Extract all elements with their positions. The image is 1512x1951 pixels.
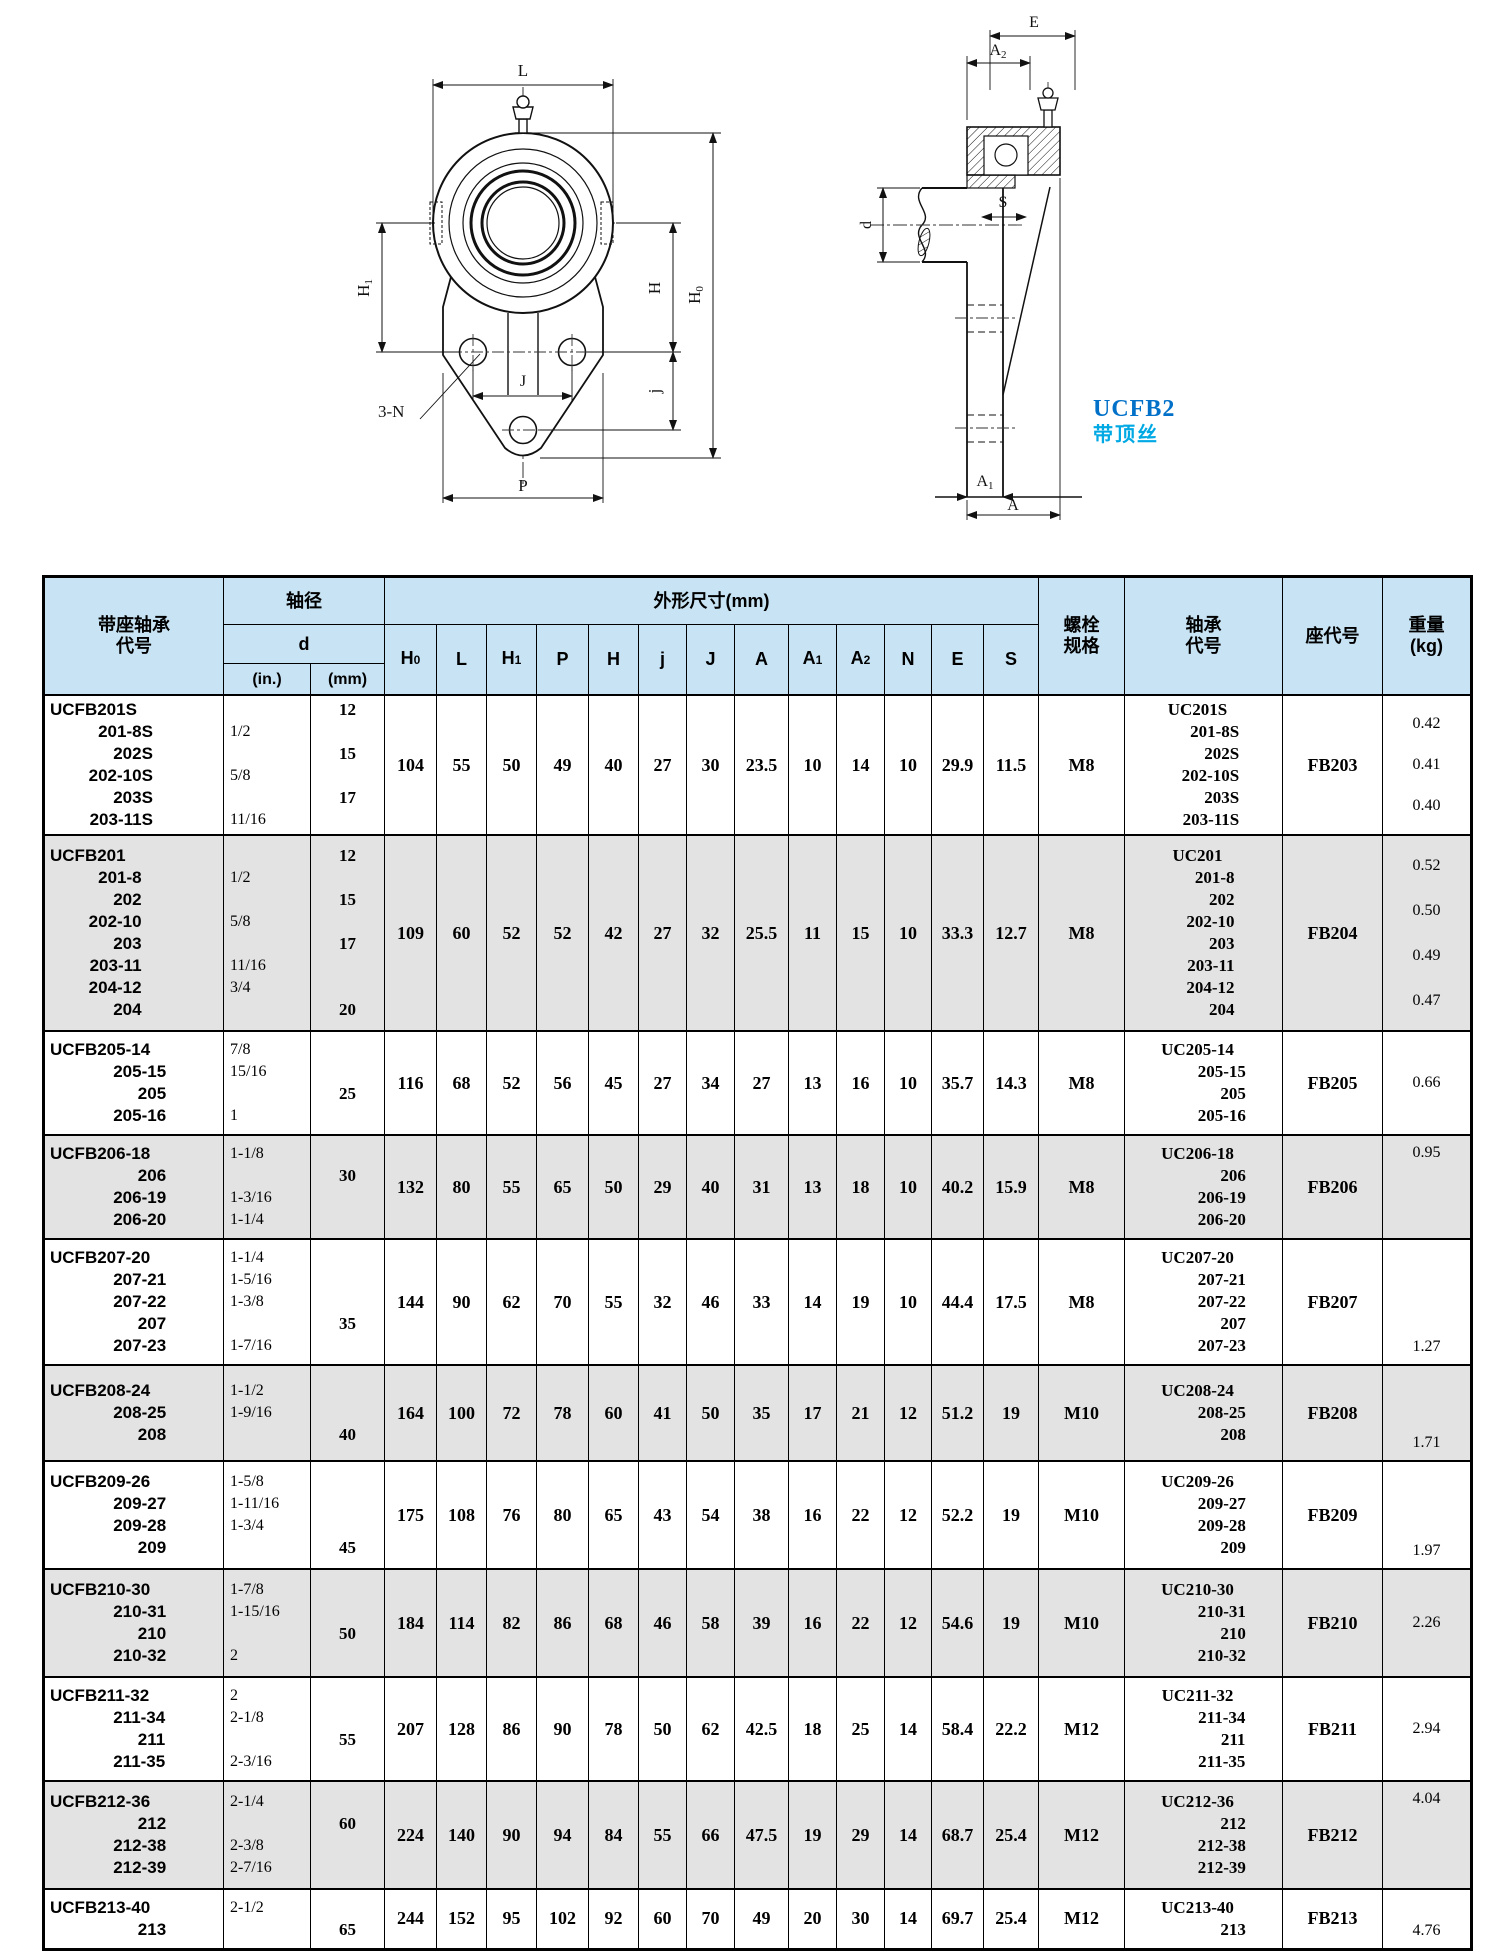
dim-label-H0: H0: [685, 286, 706, 304]
cell-dim-9: 30: [837, 1889, 885, 1949]
series-label: UCFB2 带顶丝: [1093, 397, 1175, 446]
cell-dim-1: 68: [437, 1031, 487, 1135]
cell-dim-12: 19: [984, 1365, 1039, 1461]
header-inch: (in.): [224, 664, 311, 696]
cell-dim-11: 69.7: [932, 1889, 984, 1949]
cell-dim-12: 17.5: [984, 1239, 1039, 1365]
cell-dim-4: 78: [589, 1677, 639, 1781]
side-view-drawing: E A2 d S A1: [850, 10, 1180, 530]
header-dim-A: A: [735, 625, 789, 696]
header-dim-J: J: [687, 625, 735, 696]
cell-bearing-code: UC201S201-8S202S202-10S203S203-11S: [1125, 695, 1283, 835]
cell-dim-1: 128: [437, 1677, 487, 1781]
header-dim-N: N: [885, 625, 932, 696]
cell-dim-12: 11.5: [984, 695, 1039, 835]
cell-dim-7: 38: [735, 1461, 789, 1569]
cell-shaft-dia-mm: 60: [311, 1781, 385, 1889]
cell-dim-1: 100: [437, 1365, 487, 1461]
cell-dim-0: 116: [385, 1031, 437, 1135]
cell-dim-8: 14: [789, 1239, 837, 1365]
bearing-ball: [995, 144, 1017, 166]
cell-dim-7: 23.5: [735, 695, 789, 835]
cell-dim-10: 10: [885, 695, 932, 835]
cell-unit-code: UCFB209-26209-27209-28209: [44, 1461, 224, 1569]
table-row: UCFB209-26209-27209-282091-5/81-11/161-3…: [44, 1461, 1472, 1569]
cell-bolt-spec: M10: [1039, 1569, 1125, 1677]
cell-dim-11: 52.2: [932, 1461, 984, 1569]
dim-label-d: d: [858, 221, 875, 229]
cell-unit-code: UCFB207-20207-21207-22207207-23: [44, 1239, 224, 1365]
cell-dim-4: 45: [589, 1031, 639, 1135]
cell-dim-7: 39: [735, 1569, 789, 1677]
cell-dim-1: 60: [437, 835, 487, 1031]
cell-dim-8: 13: [789, 1031, 837, 1135]
cell-dim-4: 55: [589, 1239, 639, 1365]
cell-dim-4: 50: [589, 1135, 639, 1239]
dimension-table: 带座轴承代号 轴径 外形尺寸(mm) 螺栓规格 轴承代号 座代号 重量(kg) …: [42, 575, 1473, 1951]
grease-fitting-icon: [513, 96, 533, 133]
cell-dim-9: 15: [837, 835, 885, 1031]
cell-dim-0: 144: [385, 1239, 437, 1365]
cell-bearing-code: UC213-40213: [1125, 1889, 1283, 1949]
cell-dim-4: 60: [589, 1365, 639, 1461]
cell-bolt-spec: M8: [1039, 1135, 1125, 1239]
dim-label-A: A: [1007, 497, 1019, 514]
cell-dim-6: 46: [687, 1239, 735, 1365]
header-dim-A1: A1: [789, 625, 837, 696]
cell-housing-code: FB205: [1283, 1031, 1383, 1135]
table-row: UCFB206-18206206-19206-201-1/8 1-3/161-1…: [44, 1135, 1472, 1239]
cell-dim-10: 14: [885, 1781, 932, 1889]
cell-dim-12: 15.9: [984, 1135, 1039, 1239]
cell-dim-5: 27: [639, 835, 687, 1031]
table-row: UCFB213-402132-1/2 652441529510292607049…: [44, 1889, 1472, 1949]
cell-dim-8: 11: [789, 835, 837, 1031]
cell-dim-0: 244: [385, 1889, 437, 1949]
cell-housing-code: FB210: [1283, 1569, 1383, 1677]
cell-dim-7: 42.5: [735, 1677, 789, 1781]
cell-dim-6: 70: [687, 1889, 735, 1949]
header-dim-H1: H1: [487, 625, 537, 696]
cell-dim-5: 41: [639, 1365, 687, 1461]
cell-dim-8: 18: [789, 1677, 837, 1781]
table-row: UCFB212-36212212-38212-392-1/4 2-3/82-7/…: [44, 1781, 1472, 1889]
cell-dim-3: 49: [537, 695, 589, 835]
cell-dim-0: 164: [385, 1365, 437, 1461]
series-subtitle: 带顶丝: [1093, 425, 1175, 446]
cell-unit-code: UCFB206-18206206-19206-20: [44, 1135, 224, 1239]
header-shaft-diameter: 轴径: [224, 577, 385, 625]
table-body: UCFB201S201-8S202S202-10S203S203-11S 1/2…: [44, 695, 1472, 1949]
cell-dim-9: 16: [837, 1031, 885, 1135]
cell-dim-10: 10: [885, 1239, 932, 1365]
cell-dim-6: 32: [687, 835, 735, 1031]
dim-label-L: L: [518, 61, 528, 80]
cell-dim-1: 55: [437, 695, 487, 835]
cell-dim-7: 31: [735, 1135, 789, 1239]
cell-dim-2: 82: [487, 1569, 537, 1677]
cell-dim-6: 58: [687, 1569, 735, 1677]
cell-dim-7: 27: [735, 1031, 789, 1135]
cell-dim-0: 132: [385, 1135, 437, 1239]
cell-shaft-dia-in: 1/2 5/8 11/16: [224, 695, 311, 835]
cell-dim-2: 72: [487, 1365, 537, 1461]
cell-dim-11: 58.4: [932, 1677, 984, 1781]
table-row: UCFB210-30210-31210210-321-7/81-15/16 2 …: [44, 1569, 1472, 1677]
cell-dim-5: 27: [639, 695, 687, 835]
cell-shaft-dia-mm: 35: [311, 1239, 385, 1365]
cell-dim-9: 22: [837, 1569, 885, 1677]
cell-housing-code: FB213: [1283, 1889, 1383, 1949]
cell-dim-12: 19: [984, 1461, 1039, 1569]
cell-dim-9: 29: [837, 1781, 885, 1889]
cell-dim-9: 25: [837, 1677, 885, 1781]
cell-dim-10: 10: [885, 835, 932, 1031]
cell-dim-10: 10: [885, 1031, 932, 1135]
cell-dim-2: 95: [487, 1889, 537, 1949]
cell-housing-code: FB206: [1283, 1135, 1383, 1239]
cell-shaft-dia-in: 2-1/2: [224, 1889, 311, 1949]
cell-unit-code: UCFB213-40213: [44, 1889, 224, 1949]
cell-bearing-code: UC210-30210-31210210-32: [1125, 1569, 1283, 1677]
cell-dim-3: 56: [537, 1031, 589, 1135]
cell-dim-1: 90: [437, 1239, 487, 1365]
cell-dim-3: 70: [537, 1239, 589, 1365]
table-row: UCFB211-32211-34211211-3522-1/8 2-3/16 5…: [44, 1677, 1472, 1781]
table-row: UCFB205-14205-15205205-167/815/16 1 25 1…: [44, 1031, 1472, 1135]
cell-bearing-code: UC201201-8202202-10203203-11204-12204: [1125, 835, 1283, 1031]
cell-dim-0: 224: [385, 1781, 437, 1889]
cell-dim-2: 76: [487, 1461, 537, 1569]
cell-dim-0: 207: [385, 1677, 437, 1781]
cell-dim-4: 65: [589, 1461, 639, 1569]
cell-dim-10: 10: [885, 1135, 932, 1239]
cell-weight: 1.97: [1383, 1461, 1472, 1569]
cell-weight: 0.66: [1383, 1031, 1472, 1135]
cell-bolt-spec: M12: [1039, 1889, 1125, 1949]
cell-bolt-spec: M8: [1039, 1031, 1125, 1135]
dim-label-P: P: [518, 476, 527, 495]
header-d: d: [224, 625, 385, 664]
cell-shaft-dia-mm: 55: [311, 1677, 385, 1781]
gusset-edge: [1003, 187, 1050, 395]
cell-dim-10: 14: [885, 1889, 932, 1949]
cell-dim-3: 102: [537, 1889, 589, 1949]
cell-unit-code: UCFB201201-8202202-10203203-11204-12204: [44, 835, 224, 1031]
table-row: UCFB208-24208-252081-1/21-9/16 401641007…: [44, 1365, 1472, 1461]
table-header: 带座轴承代号 轴径 外形尺寸(mm) 螺栓规格 轴承代号 座代号 重量(kg) …: [44, 577, 1472, 696]
cell-dim-10: 12: [885, 1365, 932, 1461]
cell-shaft-dia-mm: 12 15 17 20: [311, 835, 385, 1031]
cell-dim-9: 18: [837, 1135, 885, 1239]
cell-weight: 2.94: [1383, 1677, 1472, 1781]
cell-weight: 1.27: [1383, 1239, 1472, 1365]
header-bearing-code: 轴承代号: [1125, 577, 1283, 696]
cell-bearing-code: UC207-20207-21207-22207207-23: [1125, 1239, 1283, 1365]
cell-unit-code: UCFB211-32211-34211211-35: [44, 1677, 224, 1781]
cell-bearing-code: UC211-32211-34211211-35: [1125, 1677, 1283, 1781]
cell-dim-12: 12.7: [984, 835, 1039, 1031]
cell-shaft-dia-in: 22-1/8 2-3/16: [224, 1677, 311, 1781]
cell-dim-5: 43: [639, 1461, 687, 1569]
dimension-table-wrap: 带座轴承代号 轴径 外形尺寸(mm) 螺栓规格 轴承代号 座代号 重量(kg) …: [42, 575, 1473, 1951]
cell-weight: 2.26: [1383, 1569, 1472, 1677]
cell-dim-8: 20: [789, 1889, 837, 1949]
cell-bearing-code: UC205-14205-15205205-16: [1125, 1031, 1283, 1135]
cell-shaft-dia-mm: 12 15 17: [311, 695, 385, 835]
cell-dim-6: 50: [687, 1365, 735, 1461]
cell-dim-2: 52: [487, 835, 537, 1031]
cell-dim-11: 40.2: [932, 1135, 984, 1239]
cell-shaft-dia-mm: 40: [311, 1365, 385, 1461]
cell-dim-0: 104: [385, 695, 437, 835]
dim-label-H: H: [645, 282, 664, 294]
cell-dim-3: 86: [537, 1569, 589, 1677]
cell-dim-7: 35: [735, 1365, 789, 1461]
header-dim-S: S: [984, 625, 1039, 696]
cell-dim-3: 80: [537, 1461, 589, 1569]
cell-housing-code: FB203: [1283, 695, 1383, 835]
grease-fitting-icon: [1038, 82, 1058, 127]
header-dim-P: P: [537, 625, 589, 696]
cell-weight: 4.04: [1383, 1781, 1472, 1889]
header-dim-H0: H0: [385, 625, 437, 696]
cell-unit-code: UCFB201S201-8S202S202-10S203S203-11S: [44, 695, 224, 835]
cell-shaft-dia-in: 7/815/16 1: [224, 1031, 311, 1135]
cell-dim-5: 60: [639, 1889, 687, 1949]
cell-bearing-code: UC212-36212212-38212-39: [1125, 1781, 1283, 1889]
technical-drawings: L H1 H j H0 J P 3-N: [0, 0, 1512, 575]
cell-bearing-code: UC206-18206206-19206-20: [1125, 1135, 1283, 1239]
cell-dim-10: 12: [885, 1569, 932, 1677]
cell-shaft-dia-in: 1-1/8 1-3/161-1/4: [224, 1135, 311, 1239]
table-row: UCFB201201-8202202-10203203-11204-12204 …: [44, 835, 1472, 1031]
cell-dim-1: 114: [437, 1569, 487, 1677]
cell-bolt-spec: M10: [1039, 1461, 1125, 1569]
cell-dim-4: 42: [589, 835, 639, 1031]
dim-label-3N: 3-N: [378, 402, 404, 421]
cell-dim-5: 50: [639, 1677, 687, 1781]
cell-bolt-spec: M8: [1039, 695, 1125, 835]
series-code: UCFB2: [1093, 397, 1175, 422]
header-housing-code: 座代号: [1283, 577, 1383, 696]
cell-dim-6: 34: [687, 1031, 735, 1135]
cell-unit-code: UCFB212-36212212-38212-39: [44, 1781, 224, 1889]
cell-shaft-dia-mm: 65: [311, 1889, 385, 1949]
cell-dim-5: 55: [639, 1781, 687, 1889]
header-mm: (mm): [311, 664, 385, 696]
cell-dim-10: 14: [885, 1677, 932, 1781]
cell-bearing-code: UC208-24208-25208: [1125, 1365, 1283, 1461]
cell-dim-11: 51.2: [932, 1365, 984, 1461]
cell-shaft-dia-in: 1/2 5/8 11/163/4: [224, 835, 311, 1031]
cell-dim-0: 109: [385, 835, 437, 1031]
cell-weight: 0.520.500.490.47: [1383, 835, 1472, 1031]
cell-dim-11: 68.7: [932, 1781, 984, 1889]
dim-label-E: E: [1029, 14, 1039, 31]
header-outline-dims: 外形尺寸(mm): [385, 577, 1039, 625]
cell-dim-7: 49: [735, 1889, 789, 1949]
cell-housing-code: FB207: [1283, 1239, 1383, 1365]
dim-label-H1: H1: [354, 279, 375, 297]
cell-bolt-spec: M12: [1039, 1781, 1125, 1889]
cell-dim-8: 16: [789, 1461, 837, 1569]
header-weight: 重量(kg): [1383, 577, 1472, 696]
cell-dim-2: 62: [487, 1239, 537, 1365]
cell-unit-code: UCFB205-14205-15205205-16: [44, 1031, 224, 1135]
cell-dim-9: 19: [837, 1239, 885, 1365]
cell-dim-12: 22.2: [984, 1677, 1039, 1781]
cell-dim-11: 44.4: [932, 1239, 984, 1365]
cell-dim-6: 40: [687, 1135, 735, 1239]
cell-dim-3: 78: [537, 1365, 589, 1461]
cell-shaft-dia-mm: 25: [311, 1031, 385, 1135]
cell-dim-8: 17: [789, 1365, 837, 1461]
cell-dim-7: 33: [735, 1239, 789, 1365]
cell-weight: 0.95: [1383, 1135, 1472, 1239]
cell-housing-code: FB204: [1283, 835, 1383, 1031]
cell-dim-12: 14.3: [984, 1031, 1039, 1135]
cell-bolt-spec: M8: [1039, 1239, 1125, 1365]
cell-dim-6: 30: [687, 695, 735, 835]
cell-dim-11: 29.9: [932, 695, 984, 835]
cell-dim-2: 86: [487, 1677, 537, 1781]
cell-dim-11: 33.3: [932, 835, 984, 1031]
cell-dim-4: 68: [589, 1569, 639, 1677]
table-row: UCFB201S201-8S202S202-10S203S203-11S 1/2…: [44, 695, 1472, 835]
cell-dim-6: 54: [687, 1461, 735, 1569]
cell-shaft-dia-mm: 30: [311, 1135, 385, 1239]
cell-dim-3: 52: [537, 835, 589, 1031]
cell-shaft-dia-in: 1-7/81-15/16 2: [224, 1569, 311, 1677]
cell-dim-5: 46: [639, 1569, 687, 1677]
cell-dim-4: 40: [589, 695, 639, 835]
cell-dim-3: 90: [537, 1677, 589, 1781]
cell-dim-11: 54.6: [932, 1569, 984, 1677]
front-view-drawing: L H1 H j H0 J P 3-N: [340, 55, 725, 505]
cell-dim-1: 108: [437, 1461, 487, 1569]
cell-dim-0: 184: [385, 1569, 437, 1677]
cell-dim-5: 32: [639, 1239, 687, 1365]
cell-shaft-dia-mm: 50: [311, 1569, 385, 1677]
dim-label-j: j: [645, 389, 664, 395]
cell-weight: 1.71: [1383, 1365, 1472, 1461]
cell-bolt-spec: M8: [1039, 835, 1125, 1031]
header-bolt-spec: 螺栓规格: [1039, 577, 1125, 696]
cell-housing-code: FB212: [1283, 1781, 1383, 1889]
cell-dim-5: 27: [639, 1031, 687, 1135]
cell-weight: 4.76: [1383, 1889, 1472, 1949]
cell-dim-7: 25.5: [735, 835, 789, 1031]
header-dim-E: E: [932, 625, 984, 696]
cell-dim-6: 62: [687, 1677, 735, 1781]
cell-dim-10: 12: [885, 1461, 932, 1569]
cell-dim-11: 35.7: [932, 1031, 984, 1135]
header-dim-L: L: [437, 625, 487, 696]
cell-housing-code: FB208: [1283, 1365, 1383, 1461]
cell-dim-3: 65: [537, 1135, 589, 1239]
table-row: UCFB207-20207-21207-22207207-231-1/41-5/…: [44, 1239, 1472, 1365]
cell-dim-0: 175: [385, 1461, 437, 1569]
cell-dim-2: 90: [487, 1781, 537, 1889]
cell-dim-12: 25.4: [984, 1889, 1039, 1949]
cell-weight: 0.420.410.40: [1383, 695, 1472, 835]
cell-dim-6: 66: [687, 1781, 735, 1889]
header-dim-A2: A2: [837, 625, 885, 696]
cell-unit-code: UCFB208-24208-25208: [44, 1365, 224, 1461]
cell-dim-8: 13: [789, 1135, 837, 1239]
cell-dim-9: 21: [837, 1365, 885, 1461]
cell-dim-9: 22: [837, 1461, 885, 1569]
header-dim-H: H: [589, 625, 639, 696]
dim-label-A1: A1: [976, 473, 993, 492]
cell-dim-2: 55: [487, 1135, 537, 1239]
cell-dim-5: 29: [639, 1135, 687, 1239]
cell-dim-1: 140: [437, 1781, 487, 1889]
dim-label-A2: A2: [989, 42, 1006, 61]
cell-dim-2: 52: [487, 1031, 537, 1135]
cell-dim-4: 84: [589, 1781, 639, 1889]
cell-unit-code: UCFB210-30210-31210210-32: [44, 1569, 224, 1677]
cell-dim-12: 19: [984, 1569, 1039, 1677]
cell-bolt-spec: M10: [1039, 1365, 1125, 1461]
cell-dim-8: 10: [789, 695, 837, 835]
cell-shaft-dia-in: 1-1/21-9/16: [224, 1365, 311, 1461]
cell-dim-7: 47.5: [735, 1781, 789, 1889]
cell-dim-3: 94: [537, 1781, 589, 1889]
cell-bearing-code: UC209-26209-27209-28209: [1125, 1461, 1283, 1569]
cell-dim-1: 80: [437, 1135, 487, 1239]
cell-dim-2: 50: [487, 695, 537, 835]
cell-shaft-dia-in: 2-1/4 2-3/82-7/16: [224, 1781, 311, 1889]
cell-dim-12: 25.4: [984, 1781, 1039, 1889]
cell-dim-4: 92: [589, 1889, 639, 1949]
cell-bolt-spec: M12: [1039, 1677, 1125, 1781]
cell-dim-8: 16: [789, 1569, 837, 1677]
cell-housing-code: FB209: [1283, 1461, 1383, 1569]
header-unit-code: 带座轴承代号: [44, 577, 224, 696]
cell-shaft-dia-in: 1-5/81-11/161-3/4: [224, 1461, 311, 1569]
cell-dim-8: 19: [789, 1781, 837, 1889]
cell-shaft-dia-in: 1-1/41-5/161-3/8 1-7/16: [224, 1239, 311, 1365]
cell-dim-1: 152: [437, 1889, 487, 1949]
cell-shaft-dia-mm: 45: [311, 1461, 385, 1569]
cell-dim-9: 14: [837, 695, 885, 835]
cell-housing-code: FB211: [1283, 1677, 1383, 1781]
header-dim-j: j: [639, 625, 687, 696]
dim-label-J: J: [520, 373, 526, 390]
